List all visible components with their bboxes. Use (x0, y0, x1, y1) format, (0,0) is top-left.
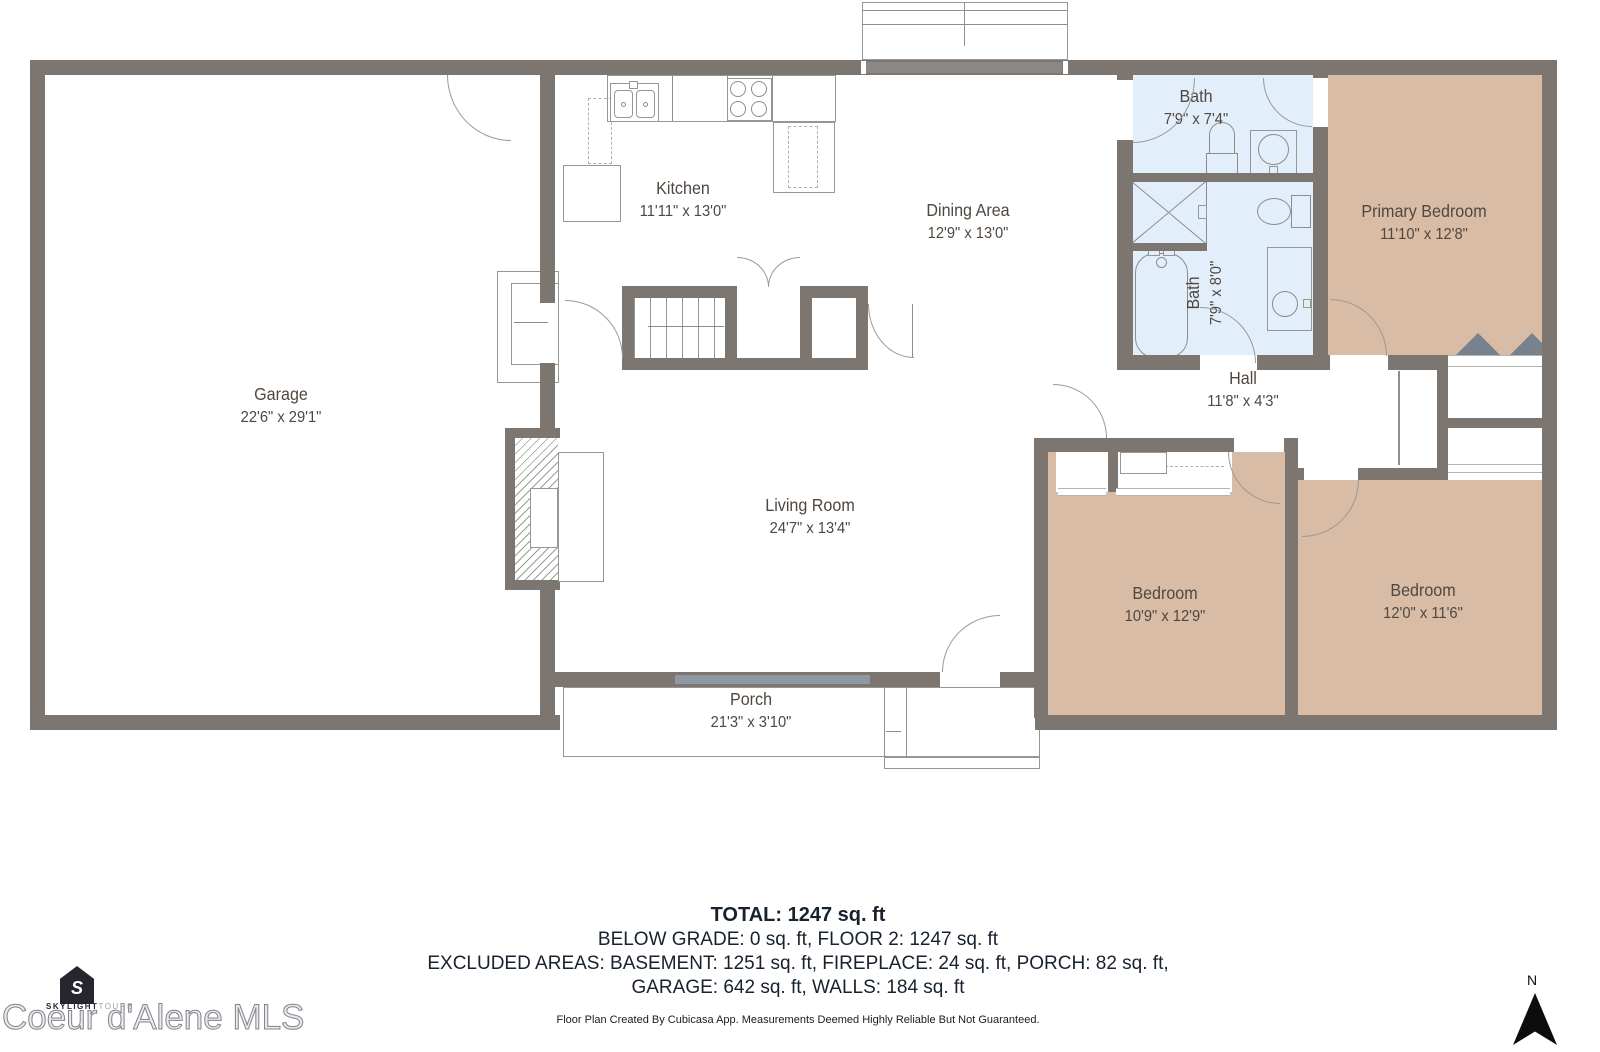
wall-segment (540, 590, 555, 715)
wall-segment (1034, 438, 1234, 452)
bathtub (1135, 253, 1188, 358)
wall-segment (622, 286, 634, 370)
primary-closet (1448, 367, 1542, 418)
wall-segment (30, 60, 1557, 75)
compass-north-arrow-icon (1513, 993, 1557, 1045)
toilet (1257, 198, 1291, 225)
stairs-arrow-line (648, 326, 724, 327)
wall-segment (30, 715, 560, 730)
burner (751, 81, 767, 97)
wall-segment (856, 286, 868, 370)
sink-drain (643, 102, 648, 107)
window (675, 675, 870, 684)
sink-faucet (629, 81, 638, 89)
wall-segment (1285, 438, 1298, 730)
wall-segment (1034, 438, 1048, 718)
double-door-arc (737, 257, 769, 287)
below-grade-line: BELOW GRADE: 0 sq. ft, FLOOR 2: 1247 sq.… (198, 928, 1398, 952)
bath-sink (1272, 291, 1298, 317)
room-label-living-room: Living Room24'7" x 13'4" (709, 494, 911, 540)
firebox (530, 488, 558, 548)
wall-segment (1133, 243, 1207, 251)
upper-cabinet-outline (788, 126, 818, 188)
tub-faucet (1156, 257, 1167, 268)
burner (730, 101, 746, 117)
wall-segment (725, 286, 737, 370)
compass-north-label: N (1527, 972, 1537, 988)
linen-closet-door (1398, 371, 1400, 465)
wall-segment (1117, 75, 1133, 80)
wall-segment (540, 363, 555, 428)
porch-arrow-line (886, 731, 901, 732)
staircase-treads (634, 298, 725, 358)
counter-divider (672, 76, 673, 121)
entry-door-wall (866, 62, 1062, 73)
room-label-porch: Porch21'3" x 3'10" (650, 688, 852, 734)
wall-segment (1313, 127, 1328, 355)
skylight-tours-logo-text: SKYLIGHTTOURS (46, 1002, 134, 1011)
wall-segment (1448, 418, 1542, 428)
wall-segment (1542, 60, 1557, 730)
wall-segment (1358, 468, 1448, 480)
excluded-areas-line2: GARAGE: 642 sq. ft, WALLS: 184 sq. ft (198, 976, 1398, 1000)
upper-cabinet-outline (588, 98, 612, 164)
toilet-tank (1291, 195, 1311, 228)
stair-closet-door-arc (868, 304, 914, 358)
bedroom2-closet (1448, 428, 1542, 464)
room-label-kitchen: Kitchen11'11" x 13'0" (582, 177, 784, 223)
burner (730, 81, 746, 97)
linen-closet (1400, 368, 1437, 468)
room-label-primary-bedroom: Primary Bedroom11'10" x 12'8" (1323, 200, 1525, 246)
wall-segment (540, 75, 555, 303)
entry-step-line (862, 10, 1068, 11)
wall-segment (1437, 368, 1448, 473)
wall-segment (1257, 355, 1330, 370)
sink-drain (621, 102, 626, 107)
sink-faucet (1303, 299, 1311, 308)
porch-divider (884, 687, 885, 757)
room-label-garage: Garage22'6" x 29'1" (180, 383, 382, 429)
wall-segment (622, 358, 868, 370)
closet-door-track (1116, 488, 1230, 496)
hall-door-arc (1053, 384, 1107, 438)
porch-steps (884, 757, 1040, 769)
closet-shelf (1120, 452, 1167, 474)
skylight-tours-logo-icon: S (60, 966, 94, 1004)
entry-step-line (862, 24, 1068, 25)
wall-segment (30, 60, 45, 730)
wall-segment (1298, 468, 1304, 480)
fireplace-wall (505, 580, 560, 590)
floor-plan: Garage22'6" x 29'1" Kitchen11'11" x 13'0… (0, 0, 1600, 1052)
brand-name-light: TOURS (98, 1002, 133, 1011)
room-label-hall: Hall11'8" x 4'3" (1142, 367, 1344, 413)
total-area: TOTAL: 1247 sq. ft (198, 903, 1398, 928)
garage-entry-door-arc (447, 75, 511, 141)
wall-segment (1117, 355, 1200, 370)
primary-closet-door-track (1448, 355, 1542, 367)
hearth (558, 452, 604, 582)
wall-notch (861, 61, 866, 74)
room-label-bedroom2: Bedroom12'0" x 11'6" (1322, 579, 1524, 625)
wall-segment (1133, 173, 1313, 182)
entry-arrow-line (964, 2, 965, 46)
wall-segment (1117, 140, 1133, 355)
shower-valve (1198, 205, 1207, 219)
closet-door-track (1448, 464, 1542, 473)
fireplace-wall (505, 428, 515, 590)
burner (751, 101, 767, 117)
disclaimer: Floor Plan Created By Cubicasa App. Meas… (298, 1014, 1298, 1026)
garage-living-door-arc (565, 300, 623, 358)
excluded-areas-line: EXCLUDED AREAS: BASEMENT: 1251 sq. ft, F… (198, 952, 1398, 976)
closet-door-track (1058, 488, 1106, 496)
bath-vanity (1267, 247, 1312, 331)
landing-arrow-line (514, 322, 548, 323)
porch-divider (906, 687, 907, 757)
bath-sink (1258, 134, 1289, 165)
double-door-arc (768, 257, 800, 287)
room-label-bedroom1: Bedroom10'9" x 12'9" (1064, 582, 1266, 628)
room-label-dining: Dining Area12'9" x 13'0" (867, 199, 1069, 245)
toilet-tank (1206, 153, 1238, 174)
counter-divider (772, 76, 773, 121)
wall-segment (800, 286, 812, 370)
fireplace-wall (505, 428, 560, 438)
porch-door-arc (942, 615, 1000, 672)
brand-name: SKYLIGHT (46, 1002, 98, 1011)
area-summary: TOTAL: 1247 sq. ft BELOW GRADE: 0 sq. ft… (198, 903, 1398, 1000)
wall-segment (622, 286, 737, 298)
closet-divider-wall (1108, 452, 1118, 492)
wall-segment (1313, 75, 1328, 78)
wall-notch (1063, 61, 1068, 74)
